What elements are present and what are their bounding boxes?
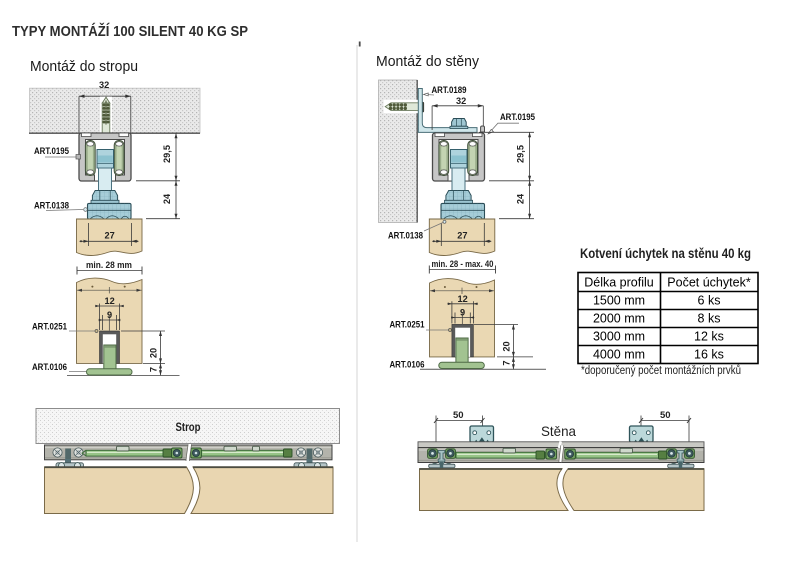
svg-text:min. 28 mm: min. 28 mm bbox=[86, 260, 132, 271]
svg-text:ART.0251: ART.0251 bbox=[32, 322, 68, 333]
svg-text:TYPY MONTÁŽÍ 100 SILENT 40 KG: TYPY MONTÁŽÍ 100 SILENT 40 KG SP bbox=[12, 22, 248, 40]
svg-text:ART.0189: ART.0189 bbox=[432, 85, 467, 96]
svg-text:12: 12 bbox=[105, 296, 115, 306]
svg-text:50: 50 bbox=[453, 410, 464, 421]
svg-text:ART.0106: ART.0106 bbox=[32, 362, 67, 373]
svg-text:7: 7 bbox=[501, 360, 511, 365]
svg-text:Stěna: Stěna bbox=[541, 423, 576, 439]
svg-text:24: 24 bbox=[162, 193, 172, 204]
svg-text:min. 28 - max. 40: min. 28 - max. 40 bbox=[432, 259, 494, 270]
svg-text:12 ks: 12 ks bbox=[694, 330, 724, 344]
svg-text:12: 12 bbox=[458, 294, 468, 304]
svg-text:1500 mm: 1500 mm bbox=[593, 294, 645, 308]
svg-text:ART.0106: ART.0106 bbox=[390, 360, 425, 371]
svg-text:ART.0195: ART.0195 bbox=[500, 112, 536, 123]
svg-text:Kotvení úchytek na stěnu 40 kg: Kotvení úchytek na stěnu 40 kg bbox=[580, 246, 751, 261]
svg-text:ART.0251: ART.0251 bbox=[390, 320, 426, 331]
svg-text:29,5: 29,5 bbox=[516, 145, 526, 163]
svg-text:4000 mm: 4000 mm bbox=[593, 348, 645, 362]
svg-text:Počet úchytek*: Počet úchytek* bbox=[667, 275, 751, 289]
svg-text:ART.0138: ART.0138 bbox=[388, 231, 423, 242]
svg-text:32: 32 bbox=[99, 80, 109, 90]
svg-text:8 ks: 8 ks bbox=[698, 312, 721, 326]
svg-text:20: 20 bbox=[501, 341, 511, 351]
svg-text:16 ks: 16 ks bbox=[694, 348, 724, 362]
svg-text:9: 9 bbox=[460, 308, 465, 318]
svg-text:2000 mm: 2000 mm bbox=[593, 312, 645, 326]
svg-text:7: 7 bbox=[149, 367, 159, 372]
svg-text:3000 mm: 3000 mm bbox=[593, 330, 645, 344]
svg-text:Montáž do stropu: Montáž do stropu bbox=[30, 58, 138, 75]
svg-text:9: 9 bbox=[107, 310, 112, 320]
svg-text:32: 32 bbox=[456, 96, 466, 106]
svg-text:50: 50 bbox=[660, 410, 671, 421]
svg-text:29,5: 29,5 bbox=[162, 145, 172, 163]
svg-text:24: 24 bbox=[516, 193, 526, 204]
svg-text:6 ks: 6 ks bbox=[698, 294, 721, 308]
svg-text:Strop: Strop bbox=[176, 422, 201, 434]
svg-text:Délka profilu: Délka profilu bbox=[584, 275, 654, 289]
svg-text:ART.0195: ART.0195 bbox=[34, 146, 70, 157]
svg-text:Montáž do stěny: Montáž do stěny bbox=[376, 53, 479, 70]
svg-text:20: 20 bbox=[149, 348, 159, 358]
svg-text:*doporučený počet montážních p: *doporučený počet montážních prvků bbox=[581, 365, 741, 377]
